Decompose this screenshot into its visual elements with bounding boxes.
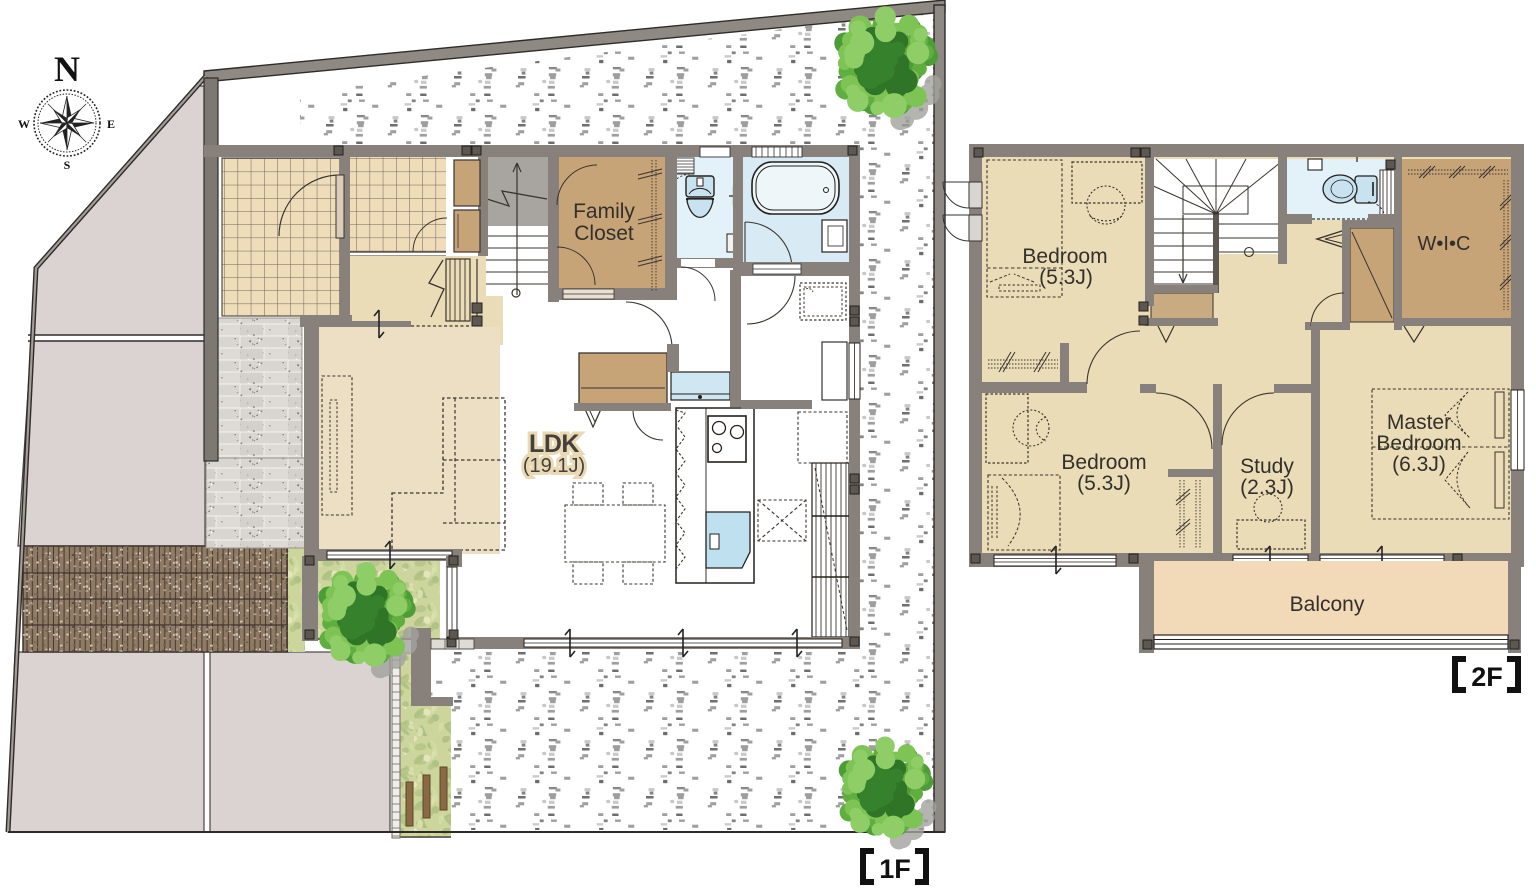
svg-text:Family: Family bbox=[573, 200, 635, 223]
svg-text:Study: Study bbox=[1240, 455, 1294, 478]
svg-text:2F: 2F bbox=[1471, 662, 1503, 692]
svg-text:(5.3J): (5.3J) bbox=[1039, 266, 1093, 289]
svg-text:(19.1J): (19.1J) bbox=[523, 455, 585, 477]
svg-text:Master: Master bbox=[1387, 411, 1451, 434]
svg-text:W: W bbox=[18, 117, 30, 131]
svg-text:N: N bbox=[54, 49, 80, 89]
svg-text:Bedroom: Bedroom bbox=[1376, 432, 1461, 455]
svg-text:S: S bbox=[64, 158, 71, 172]
svg-text:1F: 1F bbox=[879, 854, 911, 884]
svg-text:(6.3J): (6.3J) bbox=[1392, 453, 1446, 476]
svg-text:W•I•C: W•I•C bbox=[1418, 233, 1471, 255]
svg-text:Bedroom: Bedroom bbox=[1022, 245, 1107, 268]
svg-text:Bedroom: Bedroom bbox=[1061, 451, 1146, 474]
svg-text:Closet: Closet bbox=[574, 222, 634, 245]
svg-text:LDK: LDK bbox=[529, 430, 579, 458]
svg-text:(2.3J): (2.3J) bbox=[1240, 476, 1294, 499]
svg-text:E: E bbox=[107, 117, 115, 131]
svg-text:Balcony: Balcony bbox=[1290, 593, 1365, 616]
svg-text:(5.3J): (5.3J) bbox=[1077, 472, 1131, 495]
